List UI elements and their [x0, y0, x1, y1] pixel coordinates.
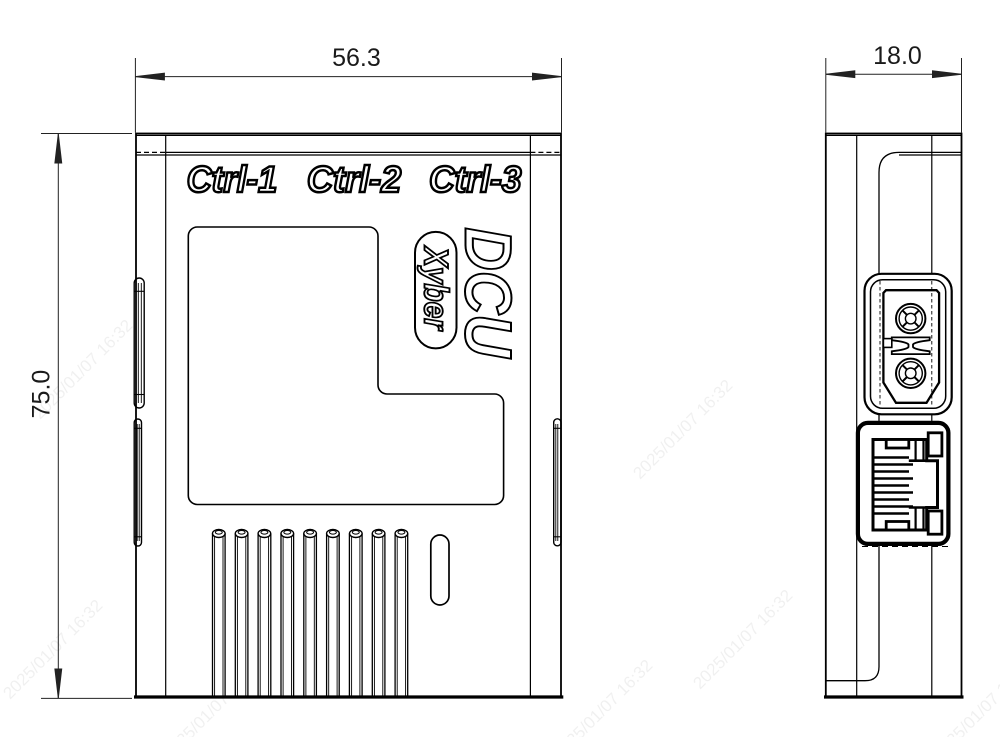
svg-text:Xyber: Xyber	[417, 245, 455, 331]
svg-text:2025/01/07 16:32: 2025/01/07 16:32	[689, 586, 796, 693]
svg-text:Ctrl-1: Ctrl-1	[187, 159, 278, 200]
svg-text:2025/01/07 16:32: 2025/01/07 16:32	[549, 656, 656, 737]
svg-text:Ctrl-2: Ctrl-2	[307, 159, 402, 200]
svg-text:Ctrl-3: Ctrl-3	[429, 159, 522, 200]
svg-text:18.0: 18.0	[873, 42, 922, 70]
svg-text:2025/01/07 16:32: 2025/01/07 16:32	[0, 596, 106, 703]
svg-text:56.3: 56.3	[332, 44, 381, 72]
svg-text:2025/01/07 16:32: 2025/01/07 16:32	[629, 376, 736, 483]
svg-text:DCU: DCU	[452, 227, 526, 359]
svg-text:75.0: 75.0	[28, 370, 56, 419]
